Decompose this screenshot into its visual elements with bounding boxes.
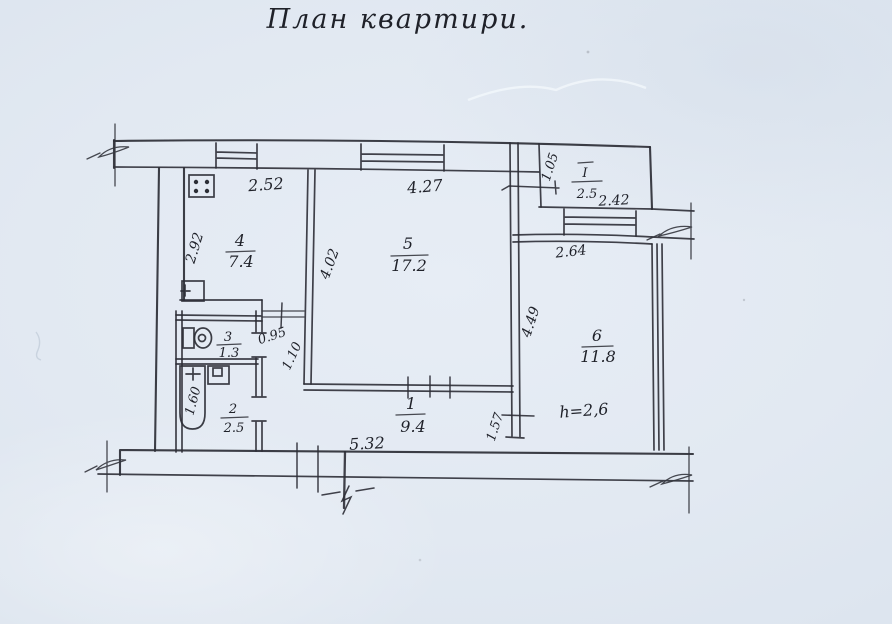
scanned-floor-plan-page: План квартири.: [0, 0, 892, 624]
stove-icon: [189, 175, 214, 197]
bedroom-door-dim: 1.57: [484, 410, 507, 443]
paper-crease: [468, 79, 646, 100]
balcony-area: 2.5: [576, 187, 598, 202]
wall-bedroom-right: [652, 244, 664, 450]
wc-area: 1.3: [219, 346, 240, 361]
living-number: 5: [403, 234, 413, 253]
wall-wc-bath-divider: [176, 359, 258, 364]
toilet-icon: [183, 328, 212, 348]
bedroom-area: 11.8: [580, 347, 616, 366]
break-mark: [322, 486, 374, 514]
living-depth-dim: 4.02: [317, 247, 343, 283]
bottom-width-dim: 5.32: [349, 433, 386, 454]
bedroom-width-dim: 2.64: [554, 242, 588, 261]
bath-area: 2.5: [223, 421, 245, 436]
balcony-offset-dim: 1.05: [539, 151, 562, 183]
wall-bath-left: [176, 311, 182, 452]
paper-speck: [743, 299, 745, 301]
hall-opening-tick: [281, 303, 282, 328]
wall-stairwell-left: [155, 168, 159, 451]
wall-living-bedroom: [506, 143, 524, 438]
hall-width-dim: 1.10: [280, 340, 306, 373]
wc-number: 3: [224, 330, 232, 345]
kitchen-window: [216, 143, 257, 169]
bathtub-icon: 1.60: [180, 366, 205, 429]
corridor-fraction-bar: [396, 414, 425, 415]
balcony-width-dim: 2.42: [597, 192, 630, 210]
paper-speck: [587, 51, 590, 54]
wall-bottom-outer: [98, 474, 693, 481]
wall-outer-top: [114, 140, 650, 147]
wc-label: 3 1.3: [217, 330, 241, 361]
kitchen-label: 4 7.4: [226, 231, 255, 271]
bath-label: 2 2.5: [221, 402, 248, 436]
wall-kitchen-living: [304, 170, 315, 384]
wall-bottom-inner: [120, 450, 693, 475]
wall-wc-top: [176, 300, 262, 321]
bathtub-length-label: 1.60: [182, 385, 204, 417]
bedroom-number: 6: [592, 326, 602, 345]
washbasin-icon: [208, 366, 229, 384]
corridor-area: 9.4: [400, 417, 425, 436]
wc-fraction-bar: [217, 344, 241, 345]
plan-title: План квартири.: [266, 4, 530, 35]
bedroom-window: [564, 209, 636, 236]
balcony-number: I: [581, 166, 588, 181]
kitchen-door-threshold: [262, 311, 304, 317]
balcony-fraction-bar: [572, 181, 602, 182]
fixtures: 1.60: [180, 175, 229, 429]
bedroom-depth-dim: 4.49: [518, 305, 543, 341]
bedroom-label: 6 11.8: [580, 326, 616, 366]
living-width-dim: 4.27: [405, 175, 444, 197]
wall-inner-top: [114, 167, 539, 172]
room-labels: 4 7.4 5 17.2 6 11.8 1 9.4 3 1.3 2 2.5: [217, 162, 616, 436]
paper-artifacts: [36, 51, 745, 562]
ceiling-height-note: h=2,6: [559, 399, 609, 421]
dimension-marks: [281, 181, 559, 514]
wall-balcony-bottom: [539, 207, 652, 209]
bath-fraction-bar: [221, 417, 248, 418]
kitchen-number: 4: [234, 231, 245, 250]
walls: [98, 140, 694, 481]
wall-balcony-right: [650, 147, 652, 209]
corridor-number: 1: [406, 394, 416, 413]
corridor-label: 1 9.4: [396, 394, 426, 436]
paper-speck: [419, 559, 422, 562]
kitchen-area: 7.4: [228, 252, 253, 271]
bath-number: 2: [228, 402, 237, 417]
hall-opening-dim: 0.95: [256, 325, 288, 348]
kitchen-width-dim: 2.52: [246, 174, 284, 196]
floor-plan-drawing: План квартири.: [0, 0, 892, 624]
kitchen-depth-dim: 2.92: [183, 231, 208, 267]
living-area: 17.2: [391, 256, 427, 275]
living-window: [361, 144, 444, 171]
living-label: 5 17.2: [391, 234, 428, 275]
axis-marker-top-left: [87, 124, 129, 186]
balcony-overline: [578, 162, 593, 163]
paper-mark: [36, 332, 41, 360]
